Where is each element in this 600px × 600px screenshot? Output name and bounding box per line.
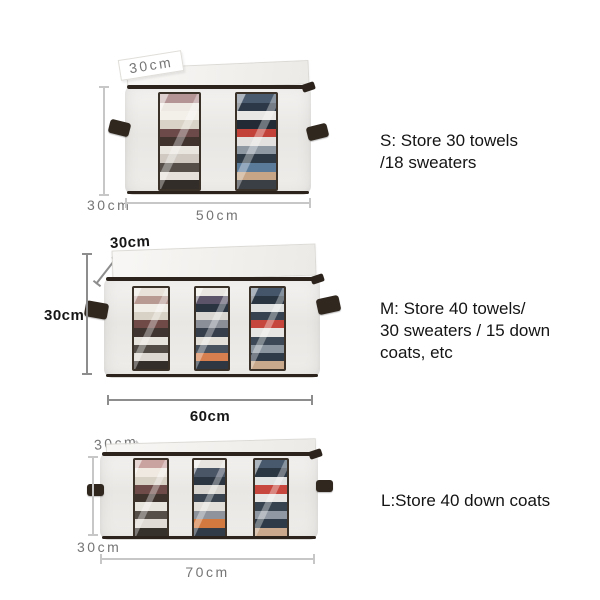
width-dimension-label: 60cm — [107, 408, 313, 425]
bag-handle-right — [316, 295, 342, 315]
product-description-s: S: Store 30 towels /18 sweaters — [380, 130, 585, 174]
bag-window — [132, 286, 170, 371]
height-dimension-label: 30cm — [44, 307, 84, 324]
bag-window — [133, 458, 169, 538]
bag-window — [253, 458, 289, 538]
bag-bottom-trim — [127, 191, 309, 194]
bag-bottom-trim — [102, 536, 316, 539]
width-dimension-line — [107, 399, 313, 401]
bag-zipper-trim — [102, 452, 316, 456]
bag-window — [192, 458, 227, 538]
bag-window — [194, 286, 230, 371]
width-dimension-label: 50cm — [125, 207, 311, 223]
height-dimension-line — [86, 253, 88, 375]
width-dimension-label: 70cm — [100, 564, 315, 580]
height-dimension-line — [103, 86, 105, 196]
product-dimension-infographic: 30cm 30cm 50cm S: Store 30 towels /18 sw… — [0, 0, 600, 600]
height-dimension-label: 30cm — [77, 539, 121, 555]
bag-zipper-trim — [106, 277, 318, 281]
bag-window — [235, 92, 278, 191]
bag-handle-right — [306, 123, 330, 142]
bag-bottom-trim — [106, 374, 318, 377]
bag-handle-left — [108, 119, 132, 138]
bag-window — [158, 92, 201, 191]
product-description-l: L:Store 40 down coats — [381, 490, 586, 512]
bag-zipper-trim — [127, 85, 309, 89]
bag-handle-right — [316, 480, 333, 492]
bag-handle-left — [87, 484, 104, 496]
product-description-m: M: Store 40 towels/ 30 sweaters / 15 dow… — [380, 298, 585, 364]
storage-bag-l-illustration — [100, 452, 318, 540]
height-dimension-line — [92, 456, 94, 536]
bag-window — [249, 286, 286, 371]
width-dimension-line — [100, 558, 315, 560]
width-dimension-line — [125, 202, 311, 204]
storage-bag-s-illustration — [125, 85, 311, 195]
storage-bag-m-illustration — [104, 277, 320, 378]
